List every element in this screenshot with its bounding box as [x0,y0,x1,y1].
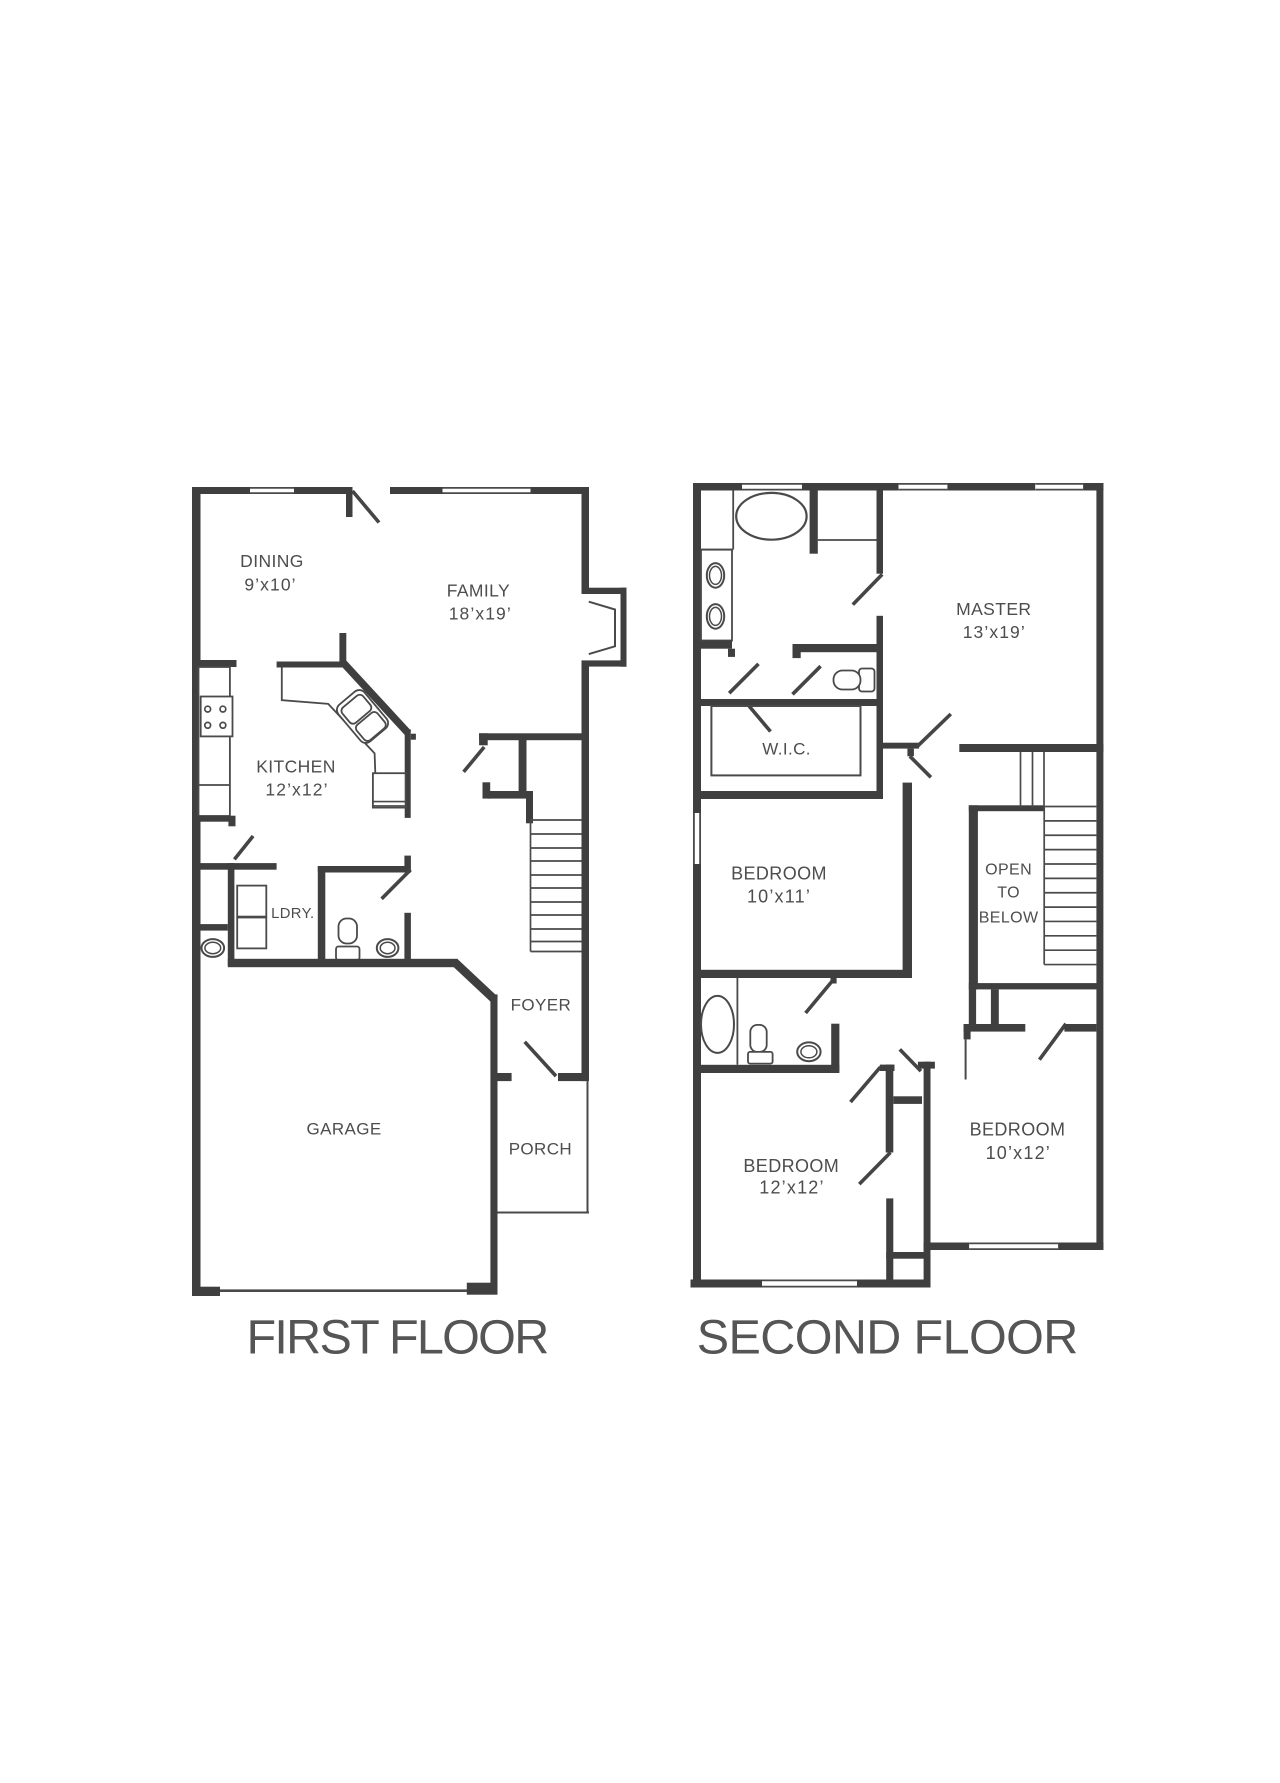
svg-text:BEDROOM: BEDROOM [970,1120,1066,1140]
svg-text:OPEN: OPEN [985,862,1032,879]
svg-text:BEDROOM: BEDROOM [743,1156,839,1176]
svg-text:10’x11’: 10’x11’ [747,887,811,907]
svg-text:GARAGE: GARAGE [307,1120,382,1139]
svg-text:12’x12’: 12’x12’ [265,780,328,800]
svg-text:13’x19’: 13’x19’ [963,622,1026,642]
svg-text:W.I.C.: W.I.C. [762,740,811,759]
svg-text:BELOW: BELOW [979,910,1039,927]
svg-text:9’x10’: 9’x10’ [244,575,296,595]
svg-text:TO: TO [997,885,1020,902]
svg-text:LDRY.: LDRY. [271,906,314,922]
svg-text:10’x12’: 10’x12’ [986,1143,1051,1163]
svg-text:FOYER: FOYER [511,996,572,1015]
svg-text:KITCHEN: KITCHEN [256,757,336,777]
svg-text:MASTER: MASTER [956,599,1031,619]
svg-text:DINING: DINING [240,551,304,571]
svg-text:18’x19’: 18’x19’ [449,604,512,624]
svg-text:12’x12’: 12’x12’ [759,1178,824,1198]
svg-text:PORCH: PORCH [509,1140,572,1159]
svg-text:BEDROOM: BEDROOM [731,864,827,884]
svg-text:SECOND FLOOR: SECOND FLOOR [697,1311,1078,1365]
svg-text:FAMILY: FAMILY [447,581,510,601]
svg-text:FIRST FLOOR: FIRST FLOOR [246,1311,547,1365]
